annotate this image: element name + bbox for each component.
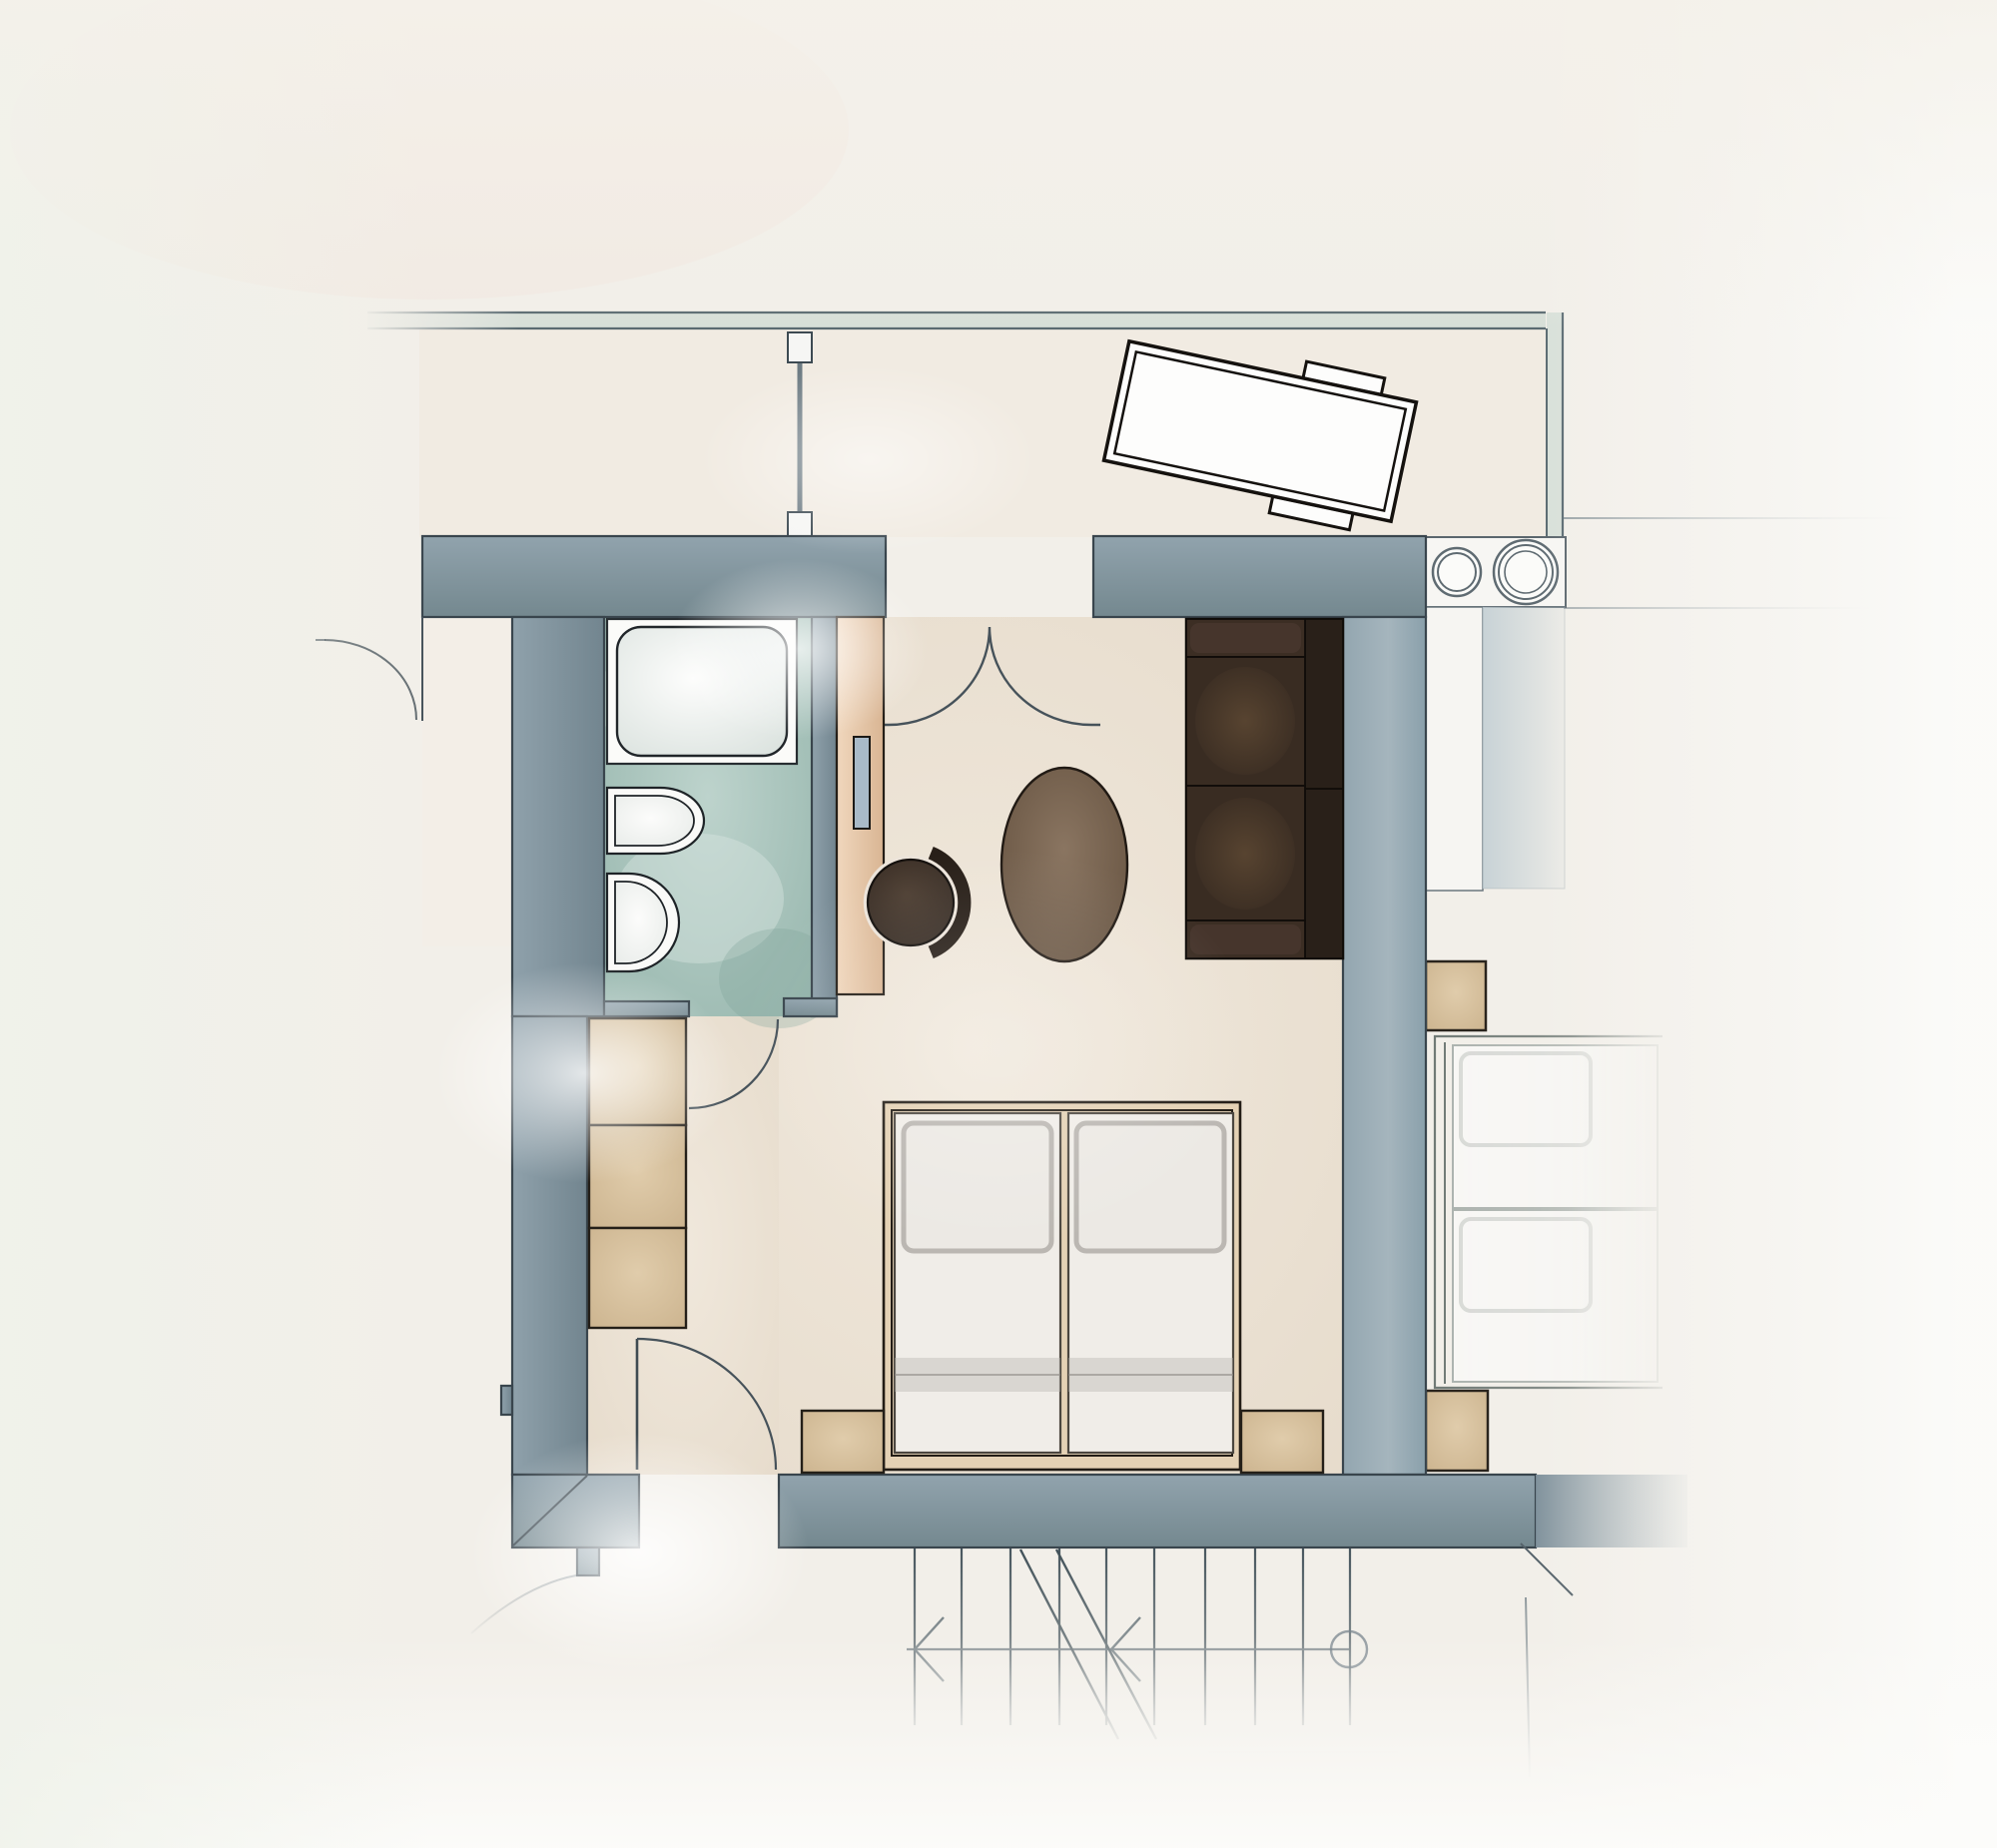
vignette-top [0, 0, 1997, 329]
wall-left-upper [512, 617, 604, 1016]
sofa-cushion-1-light [1195, 667, 1295, 775]
floor-plan-svg [0, 0, 1997, 1848]
counter-return-white [1426, 607, 1483, 891]
divider-bracket-top [788, 332, 812, 362]
toilet-bowl [615, 796, 694, 846]
wardrobe-module-3 [589, 1228, 686, 1328]
glow-room-center [739, 849, 1258, 1248]
vestibule-floor [422, 617, 512, 946]
glow-entry [669, 559, 929, 739]
sofa-armrest-top-pad [1190, 623, 1301, 653]
headboard-cabinet-bottom [1426, 1391, 1488, 1471]
headboard-cabinet-top [1426, 961, 1486, 1030]
nightstand-right [1241, 1411, 1323, 1473]
wall-right [1343, 617, 1426, 1475]
sink-small [1433, 548, 1481, 596]
nightstand-left [802, 1411, 884, 1473]
sofa [1186, 619, 1343, 958]
tv [854, 737, 870, 829]
glow-balcony [699, 364, 1038, 554]
wall-tab [501, 1386, 512, 1415]
glow-bath-door [434, 963, 734, 1183]
wall-top-right [1093, 536, 1426, 617]
glow-entry-door [469, 1433, 809, 1672]
sofa-cushion-2-light [1195, 798, 1295, 910]
floor-plan-canvas [0, 0, 1997, 1848]
wall-bottom [779, 1475, 1536, 1547]
